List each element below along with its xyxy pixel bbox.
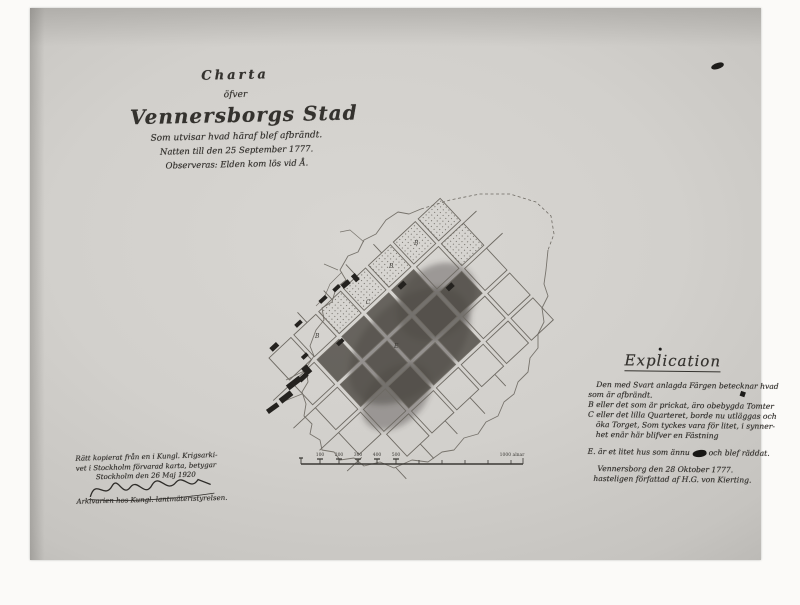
map-title-over: öfver bbox=[129, 88, 341, 102]
block-label-C: C bbox=[366, 299, 371, 306]
scale-bar-numbers: 100 200 300 400 500 1000 alnar bbox=[316, 452, 526, 458]
scale-tick-label: 100 bbox=[316, 452, 325, 458]
map-title-city: Vennersborgs Stad bbox=[130, 101, 342, 129]
signature bbox=[84, 469, 225, 505]
map-subtitle-2: Natten till den 25 September 1777. bbox=[131, 144, 343, 158]
block-label-B: B bbox=[314, 333, 320, 340]
city-block bbox=[488, 273, 530, 315]
creek-line bbox=[324, 230, 364, 270]
explication-line: het enär här blifver en Fästning bbox=[596, 430, 792, 442]
block-label-B: B bbox=[388, 263, 394, 270]
explication-author: hasteligen författad af H.G. von Kiertin… bbox=[593, 474, 791, 486]
scale-tick-label: 400 bbox=[373, 452, 382, 458]
rescued-text-after: och blef räddat. bbox=[709, 448, 770, 458]
map-title-word: Charta bbox=[129, 66, 341, 85]
city-block bbox=[486, 321, 528, 363]
ink-blot bbox=[692, 449, 707, 458]
rescued-text-before: E. är et litet hus som ännu bbox=[588, 447, 690, 457]
scale-tick-label: 500 bbox=[392, 452, 401, 458]
buildings-on-shore bbox=[266, 273, 360, 414]
city-block bbox=[511, 298, 553, 340]
map-subtitle-3: Observeras: Elden kom lös vid Å. bbox=[131, 158, 343, 172]
city-map: B B B C E bbox=[246, 184, 582, 484]
map-subtitle-1: Som utvisar hvad häraf blef afbrändt. bbox=[130, 130, 342, 144]
explication-rescued-line: E. är et litet hus som ännu och blef räd… bbox=[588, 447, 792, 459]
ink-dot bbox=[659, 348, 662, 351]
street-grid-blocks bbox=[269, 198, 553, 479]
scale-end-label: 1000 alnar bbox=[500, 452, 526, 458]
explication-title: Explication bbox=[624, 351, 721, 372]
map-title-block: Charta öfver Vennersborgs Stad Som utvis… bbox=[129, 66, 343, 172]
scale-bar: 100 200 300 400 500 1000 alnar bbox=[298, 450, 530, 472]
block-label-E: E bbox=[393, 343, 399, 350]
certification-block: Rätt kopierat från en i Kungl. Krigsarki… bbox=[75, 449, 286, 506]
scale-tick-label: 300 bbox=[354, 452, 363, 458]
scale-tick-label: 200 bbox=[335, 452, 344, 458]
explication-block: Explication Den med Svart anlagda Färgen… bbox=[587, 347, 792, 486]
ink-blot-mark bbox=[710, 62, 724, 71]
block-label-B: B bbox=[413, 240, 419, 247]
